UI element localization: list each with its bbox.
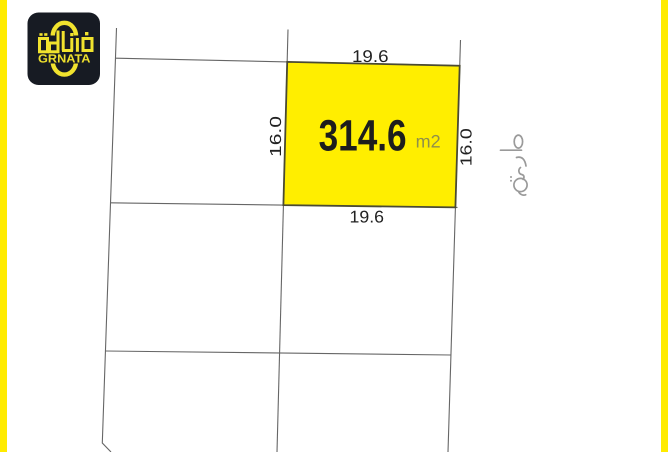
svg-text:m2: m2 [416,132,441,152]
svg-text:19.6: 19.6 [350,207,385,226]
svg-text:16.0: 16.0 [268,116,285,157]
svg-text:314.6: 314.6 [319,111,407,160]
svg-text:19.6: 19.6 [352,47,389,66]
svg-text:GRNATA: GRNATA [38,51,91,65]
svg-text:16.0: 16.0 [458,128,475,166]
